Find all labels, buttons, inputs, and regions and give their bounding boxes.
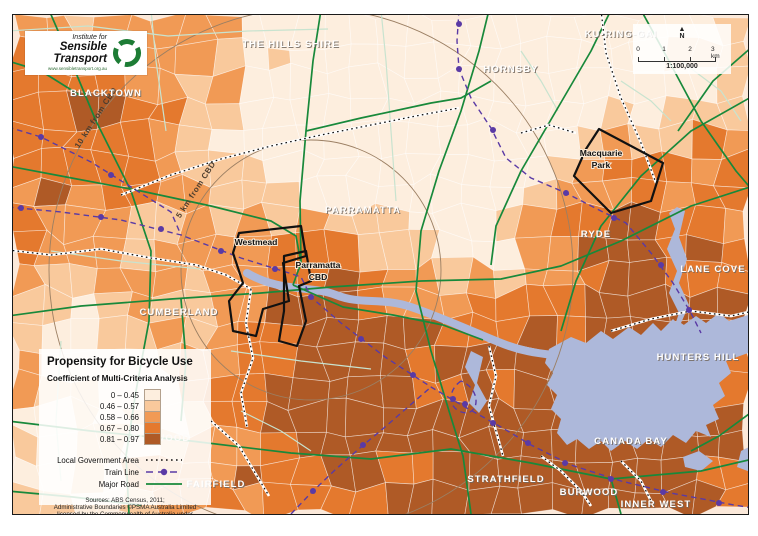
legend-line-label: Major Road: [47, 480, 144, 489]
logo-text: Institute for Sensible Transport www.sen…: [27, 34, 111, 72]
map-label-ryde: RYDE: [581, 229, 611, 240]
scale-tick-label: 0: [636, 46, 640, 53]
map-label-strathfield: STRATHFIELD: [467, 474, 544, 485]
north-arrow-icon: ▲ N: [633, 26, 731, 40]
legend-source-line: Sources: ABS Census, 2011;: [47, 497, 203, 504]
map-label-inner-west: INNER WEST: [621, 499, 692, 510]
scale-bar: [638, 56, 716, 62]
place-label-cbd: CBD: [309, 272, 328, 282]
map-label-burwood: BURWOOD: [560, 487, 619, 498]
legend-source-line: licensed by the Commonwealth of Australi…: [47, 511, 203, 515]
map-label-lane-cove: LANE COVE: [680, 264, 745, 275]
scale-tick-label: 2: [688, 46, 692, 53]
legend-source-line: Administrative Boundaries ©PSMA Australi…: [47, 504, 203, 511]
legend-subtitle: Coefficient of Multi-Criteria Analysis: [47, 374, 203, 383]
map-label-canada-bay: CANADA BAY: [594, 436, 668, 447]
legend-line-row: Local Government Area: [47, 454, 203, 466]
legend-line-list: Local Government AreaTrain LineMajor Roa…: [47, 454, 203, 490]
map-report-page: BURWOOD5 km from CBD10 km from CBDBLACKT…: [0, 0, 758, 536]
place-label-macquarie: Macquarie: [580, 148, 623, 158]
legend-sources: Sources: ABS Census, 2011;Administrative…: [47, 497, 203, 515]
legend-panel: Propensity for Bicycle Use Coefficient o…: [39, 349, 211, 505]
legend-line-row: Train Line: [47, 466, 203, 478]
logo-panel: Institute for Sensible Transport www.sen…: [25, 31, 147, 75]
legend-class-label: 0.46 – 0.57: [47, 402, 144, 411]
logo-line2: Sensible Transport: [27, 42, 107, 65]
legend-class-label: 0.58 – 0.66: [47, 413, 144, 422]
scale-tick-labels: 0123 km: [638, 46, 726, 54]
logo-line1: Institute for: [27, 34, 107, 41]
scale-panel: ▲ N 0123 km 1:100,000: [633, 24, 731, 74]
legend-class-row: 0 – 0.45: [47, 390, 203, 401]
map-label-parramatta: PARRAMATTA: [325, 205, 401, 216]
legend-train-sample-icon: [144, 467, 186, 477]
legend-road-sample-icon: [144, 479, 186, 489]
map-label-the-hills-shire: THE HILLS SHIRE: [242, 39, 339, 50]
legend-class-row: 0.46 – 0.57: [47, 401, 203, 412]
sensible-transport-logo-icon: [111, 36, 143, 70]
place-label-park: Park: [592, 160, 611, 170]
legend-lga-sample-icon: [144, 455, 186, 465]
legend-class-label: 0.81 – 0.97: [47, 435, 144, 444]
legend-line-row: Major Road: [47, 478, 203, 490]
legend-class-label: 0 – 0.45: [47, 391, 144, 400]
legend-line-label: Train Line: [47, 468, 144, 477]
place-label-westmead: Westmead: [235, 237, 278, 247]
map-label-blacktown: BLACKTOWN: [70, 88, 142, 99]
place-label-parramatta: Parramatta: [296, 260, 341, 270]
legend-class-row: 0.58 – 0.66: [47, 412, 203, 423]
map-label-hunters-hill: HUNTERS HILL: [657, 352, 740, 363]
scale-tick-label: 1: [662, 46, 666, 53]
legend-class-swatch: [144, 433, 161, 445]
legend-class-row: 0.67 – 0.80: [47, 423, 203, 434]
legend-title: Propensity for Bicycle Use: [47, 356, 203, 368]
logo-url: www.sensibletransport.org.au: [27, 67, 107, 72]
scale-ratio: 1:100,000: [633, 63, 731, 70]
legend-class-list: 0 – 0.450.46 – 0.570.58 – 0.660.67 – 0.8…: [47, 390, 203, 445]
legend-class-row: 0.81 – 0.97: [47, 434, 203, 445]
map-frame: BURWOOD5 km from CBD10 km from CBDBLACKT…: [12, 14, 749, 515]
legend-line-label: Local Government Area: [47, 456, 144, 465]
map-label-hornsby: HORNSBY: [483, 64, 538, 75]
legend-class-label: 0.67 – 0.80: [47, 424, 144, 433]
map-label-cumberland: CUMBERLAND: [139, 307, 218, 318]
